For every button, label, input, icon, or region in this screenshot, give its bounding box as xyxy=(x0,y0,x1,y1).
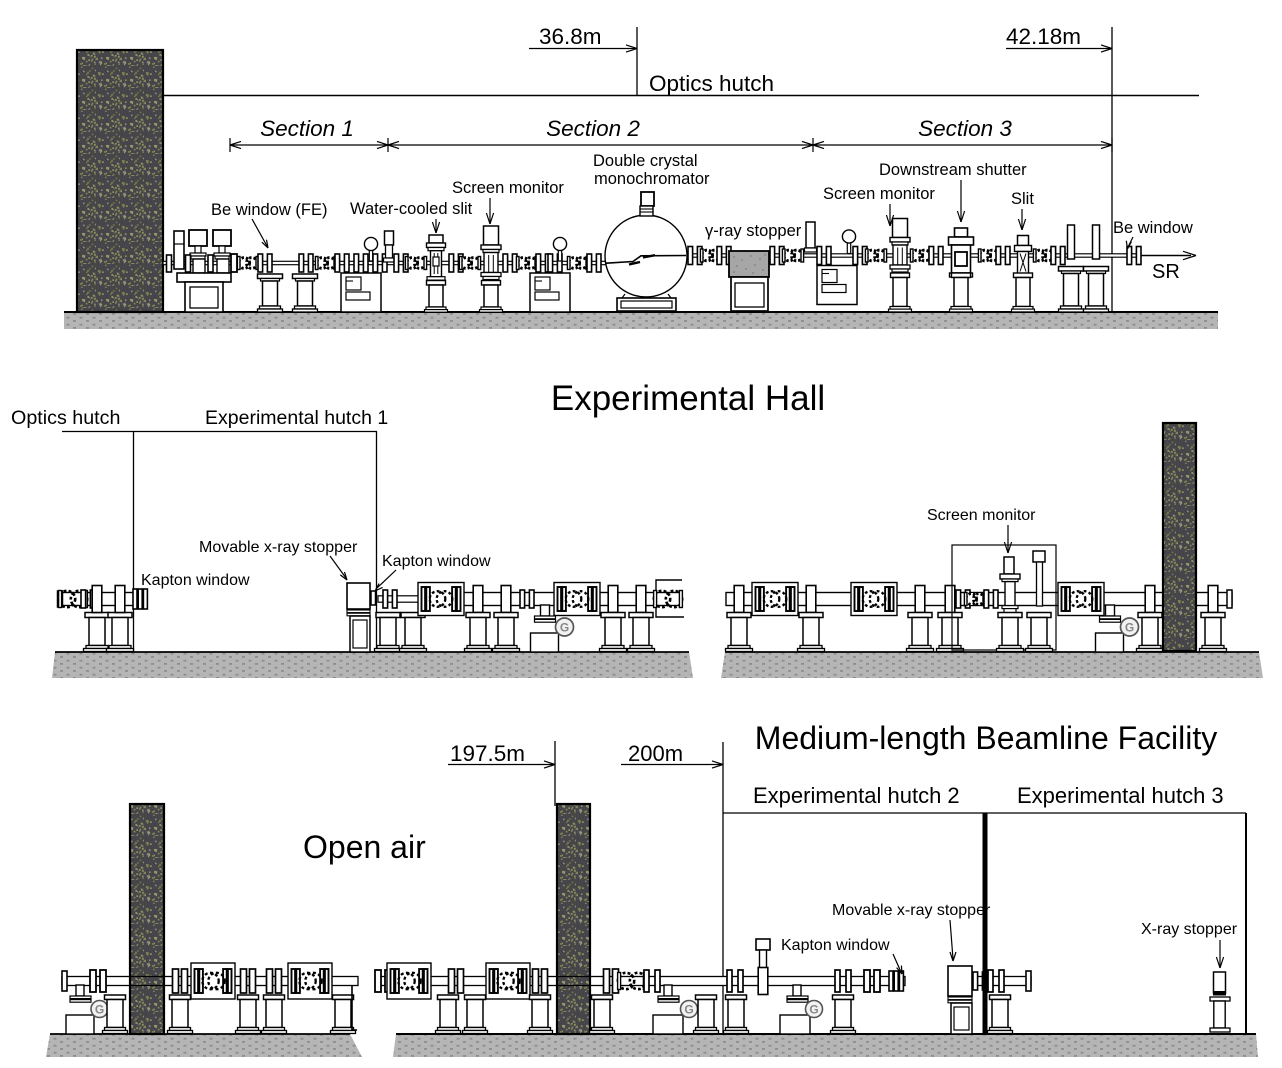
svg-text:197.5m: 197.5m xyxy=(450,741,525,766)
svg-text:Slit: Slit xyxy=(1011,190,1034,208)
svg-text:Be window (FE): Be window (FE) xyxy=(211,201,327,219)
svg-text:Kapton window: Kapton window xyxy=(781,937,890,954)
svg-text:Experimental Hall: Experimental Hall xyxy=(551,379,825,418)
svg-text:Be window: Be window xyxy=(1113,219,1193,237)
svg-text:Movable x-ray stopper: Movable x-ray stopper xyxy=(832,902,991,919)
svg-text:Medium-length Beamline Facilit: Medium-length Beamline Facility xyxy=(755,720,1217,756)
svg-text:Water-cooled slit: Water-cooled slit xyxy=(350,200,473,218)
svg-text:Movable x-ray stopper: Movable x-ray stopper xyxy=(199,539,358,556)
svg-text:Experimental hutch 3: Experimental hutch 3 xyxy=(1017,783,1224,808)
svg-text:G: G xyxy=(809,1003,818,1017)
svg-text:Section 1: Section 1 xyxy=(260,116,354,141)
svg-text:Kapton window: Kapton window xyxy=(382,553,491,570)
svg-text:X-ray stopper: X-ray stopper xyxy=(1141,921,1238,938)
svg-text:G: G xyxy=(684,1003,693,1017)
svg-text:Kapton window: Kapton window xyxy=(141,572,250,589)
svg-text:Section 3: Section 3 xyxy=(918,116,1012,141)
svg-text:Optics hutch: Optics hutch xyxy=(649,71,774,96)
svg-text:42.18m: 42.18m xyxy=(1006,24,1081,49)
svg-text:200m: 200m xyxy=(628,741,683,766)
svg-text:G: G xyxy=(95,1003,104,1017)
svg-text:Experimental hutch 2: Experimental hutch 2 xyxy=(753,783,960,808)
svg-text:Experimental hutch 1: Experimental hutch 1 xyxy=(205,407,388,429)
svg-text:36.8m: 36.8m xyxy=(539,24,602,49)
svg-text:SR: SR xyxy=(1152,261,1180,283)
svg-text:γ-ray stopper: γ-ray stopper xyxy=(705,222,802,240)
svg-text:Screen monitor: Screen monitor xyxy=(823,185,935,203)
svg-text:Double crystal: Double crystal xyxy=(593,152,698,170)
svg-text:Screen monitor: Screen monitor xyxy=(927,507,1036,524)
svg-text:Section 2: Section 2 xyxy=(546,116,640,141)
svg-text:Screen monitor: Screen monitor xyxy=(452,179,564,197)
svg-text:Open air: Open air xyxy=(303,829,426,865)
svg-text:Optics hutch: Optics hutch xyxy=(11,407,120,429)
svg-text:Downstream shutter: Downstream shutter xyxy=(879,161,1027,179)
svg-text:monochromator: monochromator xyxy=(594,170,710,188)
